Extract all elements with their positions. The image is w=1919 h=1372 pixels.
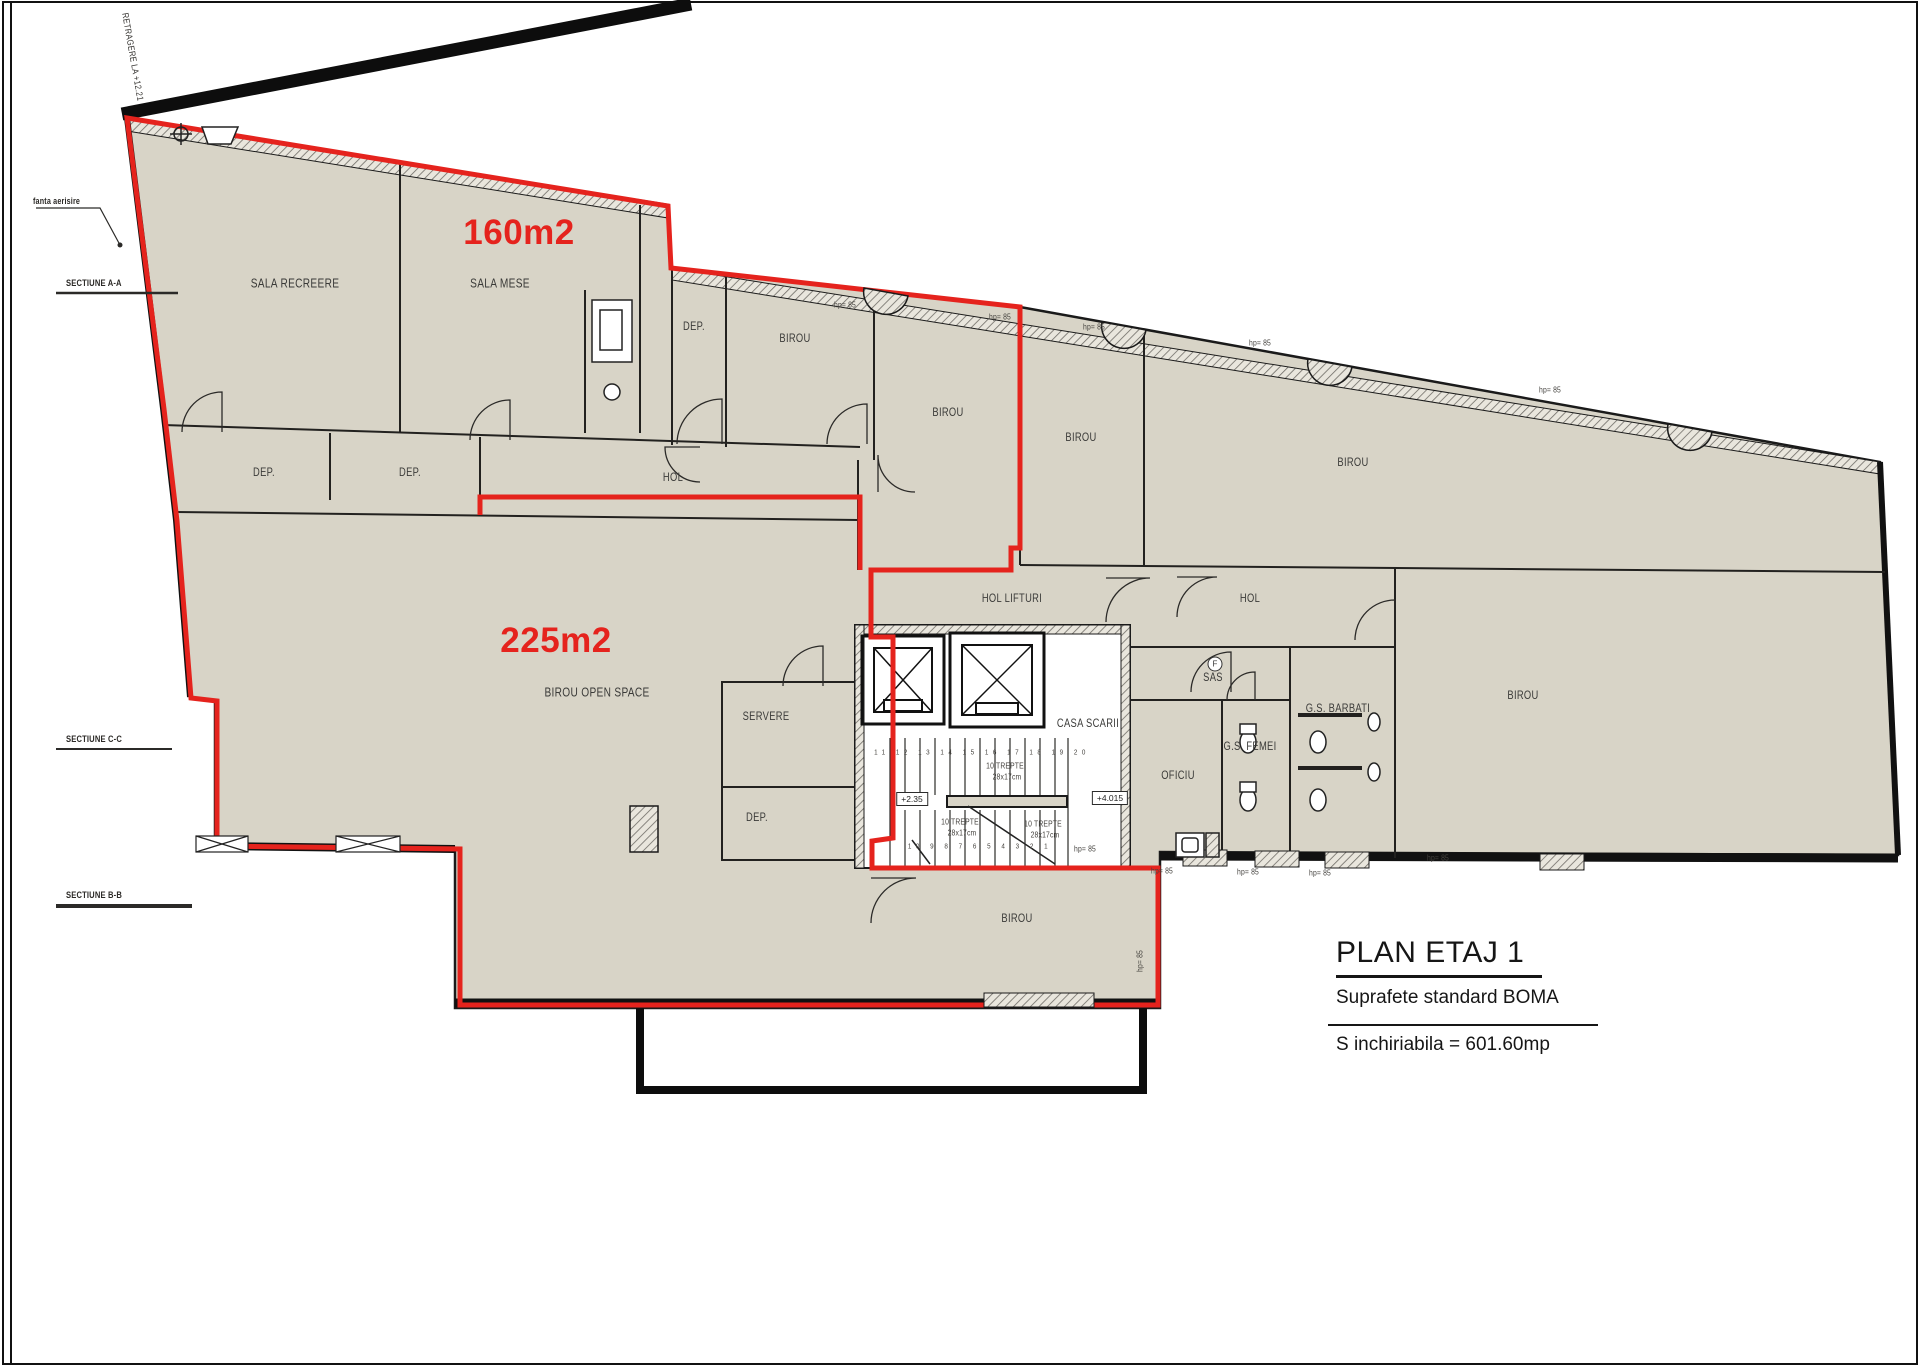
window-parapet-label: hp= 85	[1083, 323, 1105, 332]
title-block: PLAN ETAJ 1 Suprafete standard BOMA	[1336, 936, 1559, 1009]
room-label-dep-servere: DEP.	[746, 810, 768, 824]
vent-note: fanta aerisire	[33, 196, 80, 206]
room-label-hol-lifturi: HOL LIFTURI	[982, 591, 1042, 605]
room-label-birou-2: BIROU	[932, 405, 963, 419]
plan-subtitle: Suprafete standard BOMA	[1336, 987, 1559, 1009]
room-label-gs-barbati: G.S. BARBATI	[1306, 701, 1370, 715]
level-marker-left: +2.35	[896, 792, 928, 806]
fire-point-icon: F	[1208, 657, 1223, 672]
room-label-dep-top: DEP.	[683, 319, 705, 333]
room-label-sas: SAS	[1203, 670, 1223, 684]
window-parapet-label: hp= 85	[1309, 869, 1331, 878]
stair-treads-text: 10 TREPTE	[986, 762, 1024, 771]
stair-treads-text: 10 TREPTE	[1024, 820, 1062, 829]
window-parapet-label: hp= 85	[989, 313, 1011, 322]
room-label-dep-a: DEP.	[253, 465, 275, 479]
column	[630, 806, 658, 852]
floor-plan-page: 160m2 225m2 SALA RECREERE SALA MESE DEP.…	[0, 0, 1919, 1372]
room-label-birou-3: BIROU	[1065, 430, 1096, 444]
room-label-birou-bottom: BIROU	[1001, 911, 1032, 925]
title-block-divider	[1328, 1024, 1598, 1026]
setback-band	[122, 4, 691, 114]
stair-step-numbers-top: 11 12 13 14 15 16 17 18 19 20	[874, 750, 1090, 757]
zone-area-225: 225m2	[500, 621, 611, 661]
room-label-gs-femei: G.S. FEMEI	[1223, 739, 1276, 753]
stair-treads-dim: 28x17cm	[1031, 831, 1060, 840]
stair-treads-text: 10 TREPTE	[941, 818, 979, 827]
stair-step-numbers-bottom: 10 9 8 7 6 5 4 3 2 1	[908, 844, 1052, 851]
room-label-casa-scarii: CASA SCARII	[1057, 716, 1119, 730]
plan-title: PLAN ETAJ 1	[1336, 936, 1542, 978]
zone-area-160: 160m2	[463, 213, 574, 253]
section-label-aa: SECTIUNE A-A	[66, 278, 122, 289]
window-parapet-label: hp= 85	[1539, 386, 1561, 395]
section-label-bb: SECTIUNE B-B	[66, 890, 122, 901]
floor-plan-drawing	[0, 0, 1919, 1372]
room-label-hol-right: HOL	[1240, 591, 1260, 605]
window-parapet-label: hp= 85	[834, 301, 856, 310]
room-label-hol-left: HOL	[663, 470, 683, 484]
room-label-servere: SERVERE	[743, 709, 790, 723]
room-label-birou-4: BIROU	[1337, 455, 1368, 469]
window-parapet-label: hp= 85	[1237, 868, 1259, 877]
rentable-area-text: S inchiriabila = 601.60mp	[1336, 1034, 1550, 1056]
room-label-dep-b: DEP.	[399, 465, 421, 479]
room-label-sala-mese: SALA MESE	[470, 276, 530, 291]
terrace-outline	[640, 1008, 1143, 1090]
room-label-birou-1: BIROU	[779, 331, 810, 345]
room-label-oficiu: OFICIU	[1161, 768, 1195, 782]
core-stairwell	[855, 625, 1130, 868]
window-parapet-label: hp= 85	[1427, 854, 1449, 863]
stair-treads-dim: 28x17cm	[993, 773, 1022, 782]
room-label-birou-right: BIROU	[1507, 688, 1538, 702]
window-parapet-label: hp= 85	[1074, 845, 1096, 854]
section-label-cc: SECTIUNE C-C	[66, 734, 122, 745]
room-label-sala-recreere: SALA RECREERE	[251, 276, 340, 291]
window-parapet-label-vertical: hp= 85	[1136, 950, 1145, 972]
window-parapet-label: hp= 85	[1249, 339, 1271, 348]
room-label-birou-open-space: BIROU OPEN SPACE	[544, 685, 649, 700]
level-marker-right: +4.015	[1092, 791, 1128, 805]
stair-treads-dim: 28x17cm	[948, 829, 977, 838]
window-parapet-label: hp= 85	[1151, 867, 1173, 876]
